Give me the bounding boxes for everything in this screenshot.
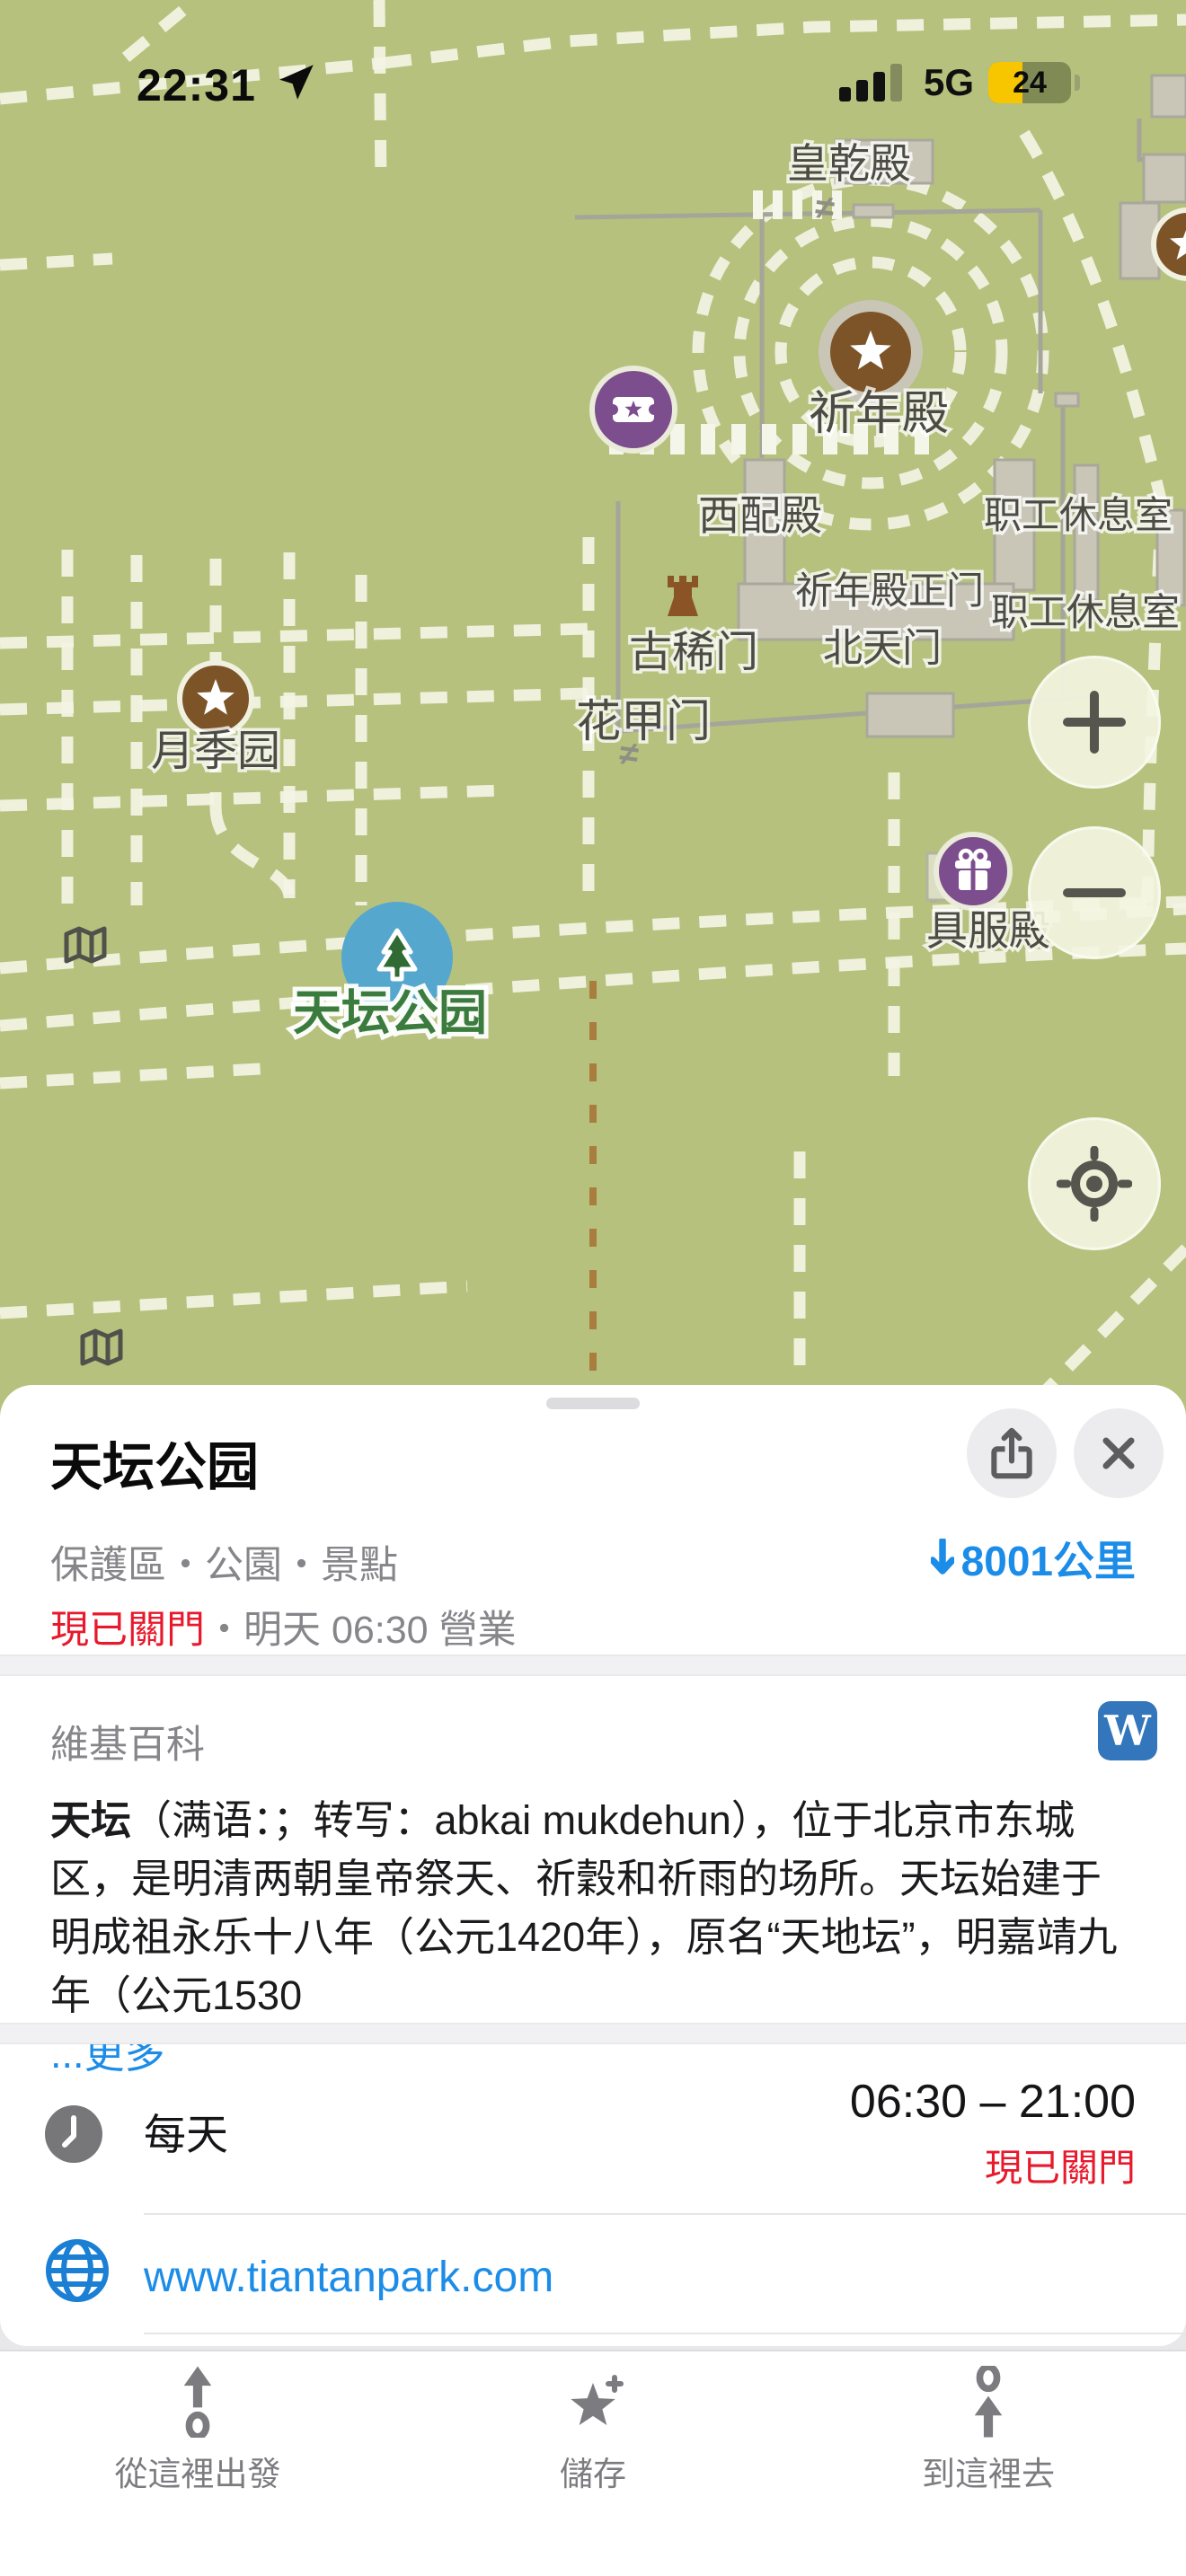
globe-icon — [43, 2236, 111, 2309]
gift-shop-marker[interactable] — [936, 834, 1010, 908]
label-yuejiyuan: 月季园 — [151, 728, 280, 775]
plus-icon — [1060, 688, 1128, 756]
battery-icon: 24 — [988, 62, 1071, 103]
toolbar-label: 儲存 — [560, 2447, 626, 2495]
label-huangqiandian: 皇乾殿 — [787, 140, 911, 187]
network-type: 5G — [924, 61, 974, 104]
website-link[interactable]: www.tiantanpark.com — [144, 2253, 553, 2302]
locate-button[interactable] — [1028, 1117, 1161, 1250]
closed-status: 現已關門 — [50, 1609, 205, 1652]
wikipedia-label: 維基百科 — [50, 1714, 205, 1769]
wikipedia-icon[interactable]: W — [1098, 1701, 1157, 1760]
toolbar-label: 到這裡去 — [922, 2447, 1055, 2495]
distance-badge: 8001公里 — [931, 1529, 1136, 1588]
section-separator — [0, 2023, 1186, 2044]
gift-icon — [955, 851, 991, 891]
phone-screen: ≠ ≠ 皇乾殿 祈年殿 西配殿 职工休息室 祈年殿正门 职工休息室 古稀门 北天… — [0, 0, 1186, 2576]
distance-value: 8001公里 — [961, 1529, 1136, 1588]
paragraph-lead: 天坛 — [50, 1797, 131, 1843]
label-huajiamen: 花甲门 — [576, 696, 711, 746]
route-from-icon — [173, 2366, 223, 2438]
save-button[interactable]: 儲存 — [395, 2351, 791, 2576]
target-icon — [1057, 1146, 1132, 1222]
status-bar: 22:31 5G 24 — [0, 54, 1186, 126]
clock-time: 22:31 — [137, 59, 256, 111]
share-icon — [988, 1427, 1035, 1479]
directions-from-here-button[interactable]: 從這裡出發 — [0, 2351, 395, 2576]
place-title: 天坛公园 — [50, 1425, 259, 1500]
clock-icon — [43, 2104, 104, 2169]
close-icon — [1099, 1434, 1138, 1473]
share-button[interactable] — [967, 1408, 1057, 1498]
map-canvas[interactable]: ≠ ≠ 皇乾殿 祈年殿 西配殿 职工休息室 祈年殿正门 职工休息室 古稀门 北天… — [0, 0, 1186, 1437]
label-staff-room-1: 职工休息室 — [984, 494, 1173, 536]
zoom-in-button[interactable] — [1028, 656, 1161, 789]
label-guximen: 古稀门 — [629, 629, 758, 676]
route-to-icon — [963, 2366, 1013, 2438]
label-tiantan-park: 天坛公园 — [293, 986, 487, 1040]
down-arrow-icon — [931, 1539, 954, 1578]
hours-status: 現已關門 — [985, 2138, 1136, 2192]
toolbar-label: 從這裡出發 — [115, 2447, 281, 2495]
yuejiyuan-star-marker[interactable] — [180, 663, 252, 735]
bottom-toolbar: 從這裡出發 儲存 到這裡去 — [0, 2350, 1186, 2576]
open-status-line: 現已關門・明天 06:30 營業 — [50, 1599, 517, 1654]
ticket-office-marker[interactable] — [592, 368, 675, 451]
minus-icon — [1060, 859, 1128, 927]
label-qiniandian: 祈年殿 — [809, 388, 949, 440]
label-qiniandian-gate: 祈年殿正门 — [795, 569, 984, 612]
divider — [144, 2213, 1186, 2215]
zoom-out-button[interactable] — [1028, 826, 1161, 959]
close-button[interactable] — [1074, 1408, 1164, 1498]
drag-handle[interactable] — [546, 1398, 640, 1409]
hours-row: 每天 06:30 – 21:00 現已關門 — [0, 2046, 1186, 2217]
label-beitianmen: 北天门 — [823, 626, 942, 670]
open-info: ・明天 06:30 營業 — [205, 1609, 517, 1652]
location-arrow-icon — [277, 63, 316, 107]
label-xipeidian: 西配殿 — [698, 492, 822, 539]
directions-to-here-button[interactable]: 到這裡去 — [791, 2351, 1186, 2576]
place-category: 保護區・公園・景點 — [50, 1534, 398, 1590]
label-staff-room-2: 职工休息室 — [991, 591, 1180, 633]
battery-percent: 24 — [988, 62, 1071, 103]
paragraph-text: （满语：；转写：abkai mukdehun），位于北京市东城区，是明清两朝皇帝… — [50, 1797, 1118, 2018]
divider — [144, 2333, 1186, 2334]
hours-days: 每天 — [144, 2100, 228, 2162]
signal-bars-icon — [839, 62, 909, 103]
section-separator — [0, 1654, 1186, 1676]
website-row[interactable]: www.tiantanpark.com — [0, 2220, 1186, 2328]
place-card: 天坛公园 保護區・公園・景點 8001公里 現已關門・明天 06:30 營業 維… — [0, 1385, 1186, 2346]
hours-time: 06:30 – 21:00 — [850, 2075, 1136, 2129]
save-star-icon — [557, 2366, 629, 2438]
